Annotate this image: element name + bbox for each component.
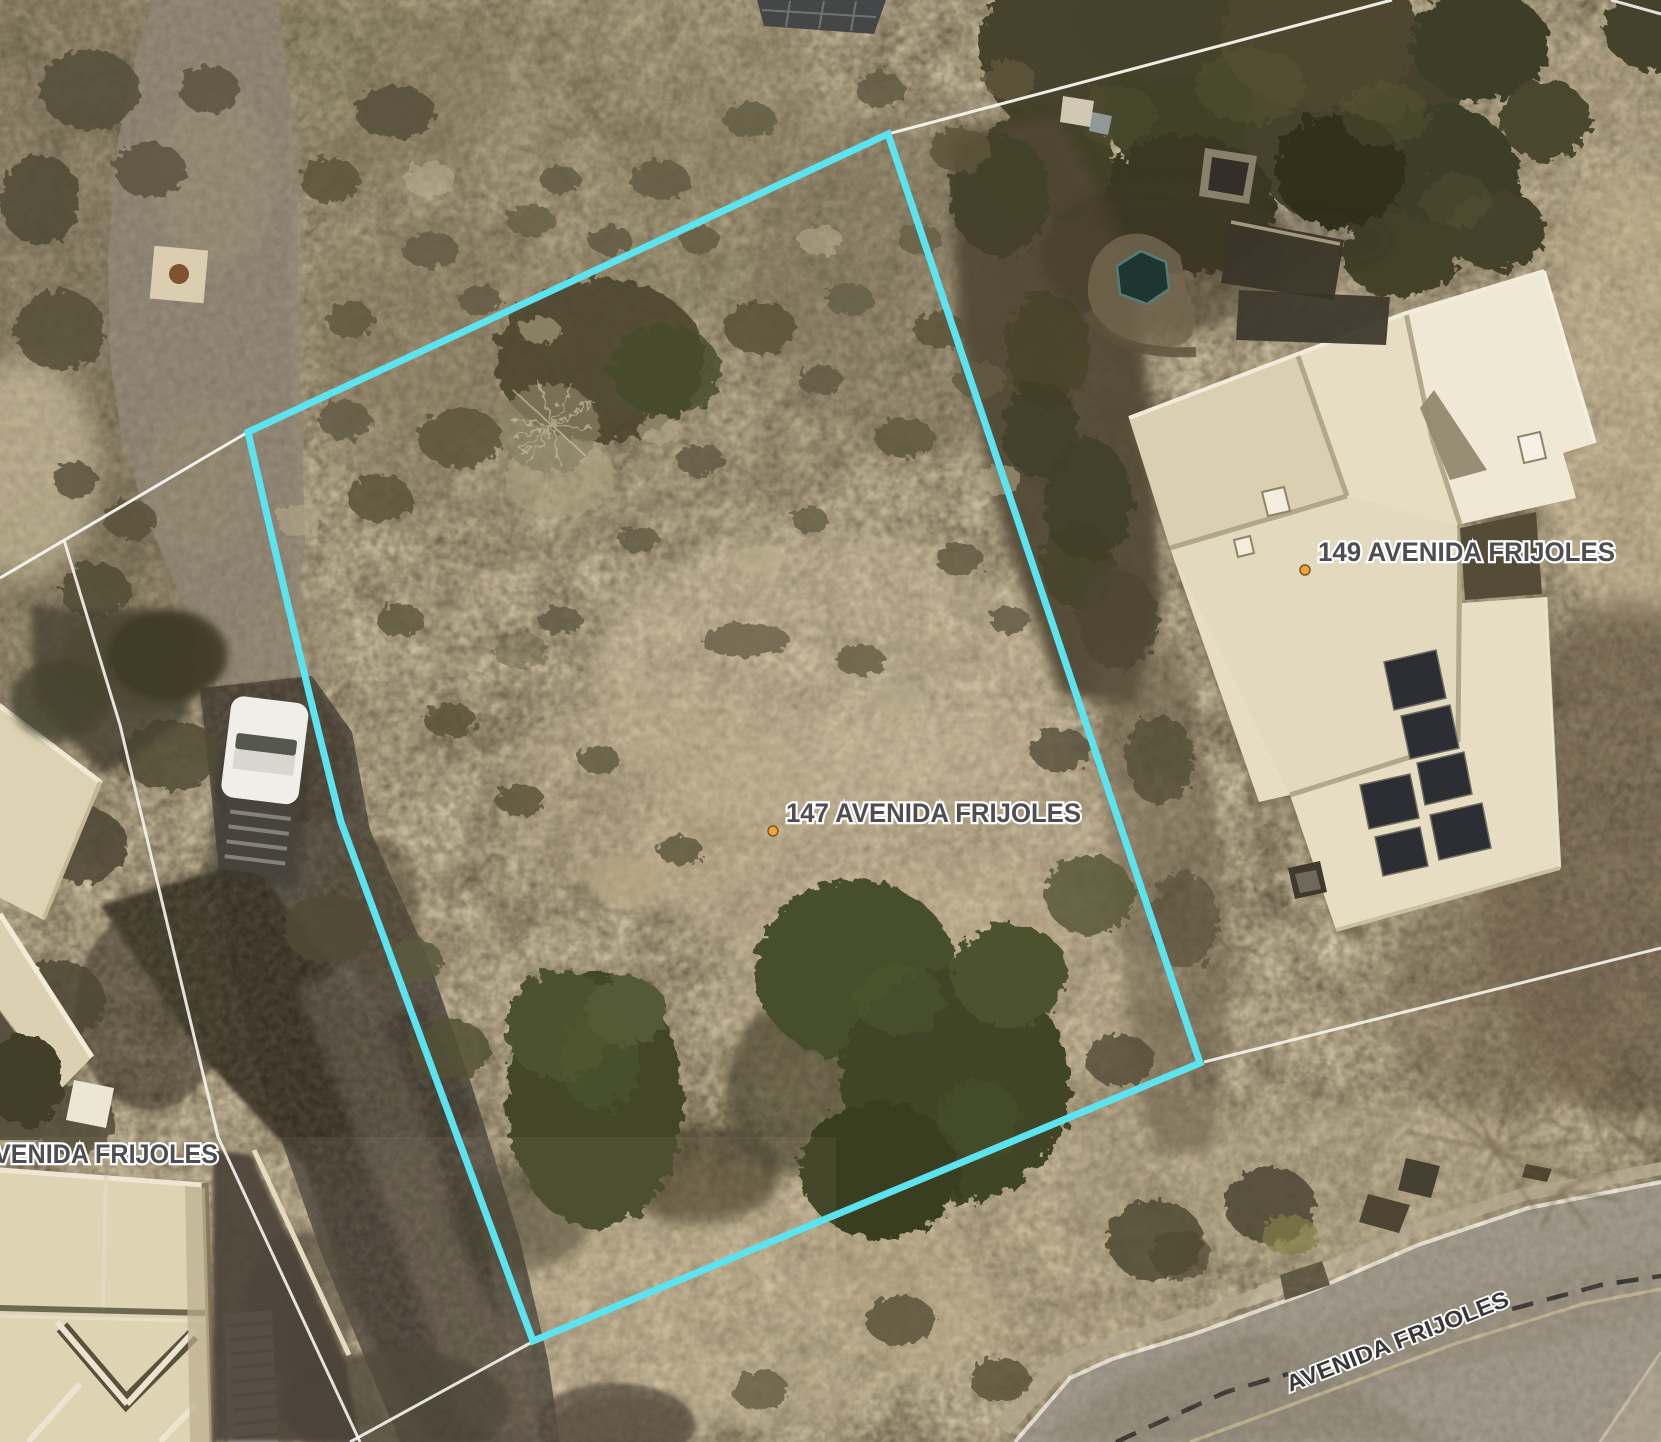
svg-text:147 AVENIDA FRIJOLES: 147 AVENIDA FRIJOLES bbox=[786, 798, 1081, 828]
svg-text:149 AVENIDA FRIJOLES: 149 AVENIDA FRIJOLES bbox=[1318, 537, 1615, 567]
svg-text:VENIDA FRIJOLES: VENIDA FRIJOLES bbox=[0, 1139, 218, 1169]
